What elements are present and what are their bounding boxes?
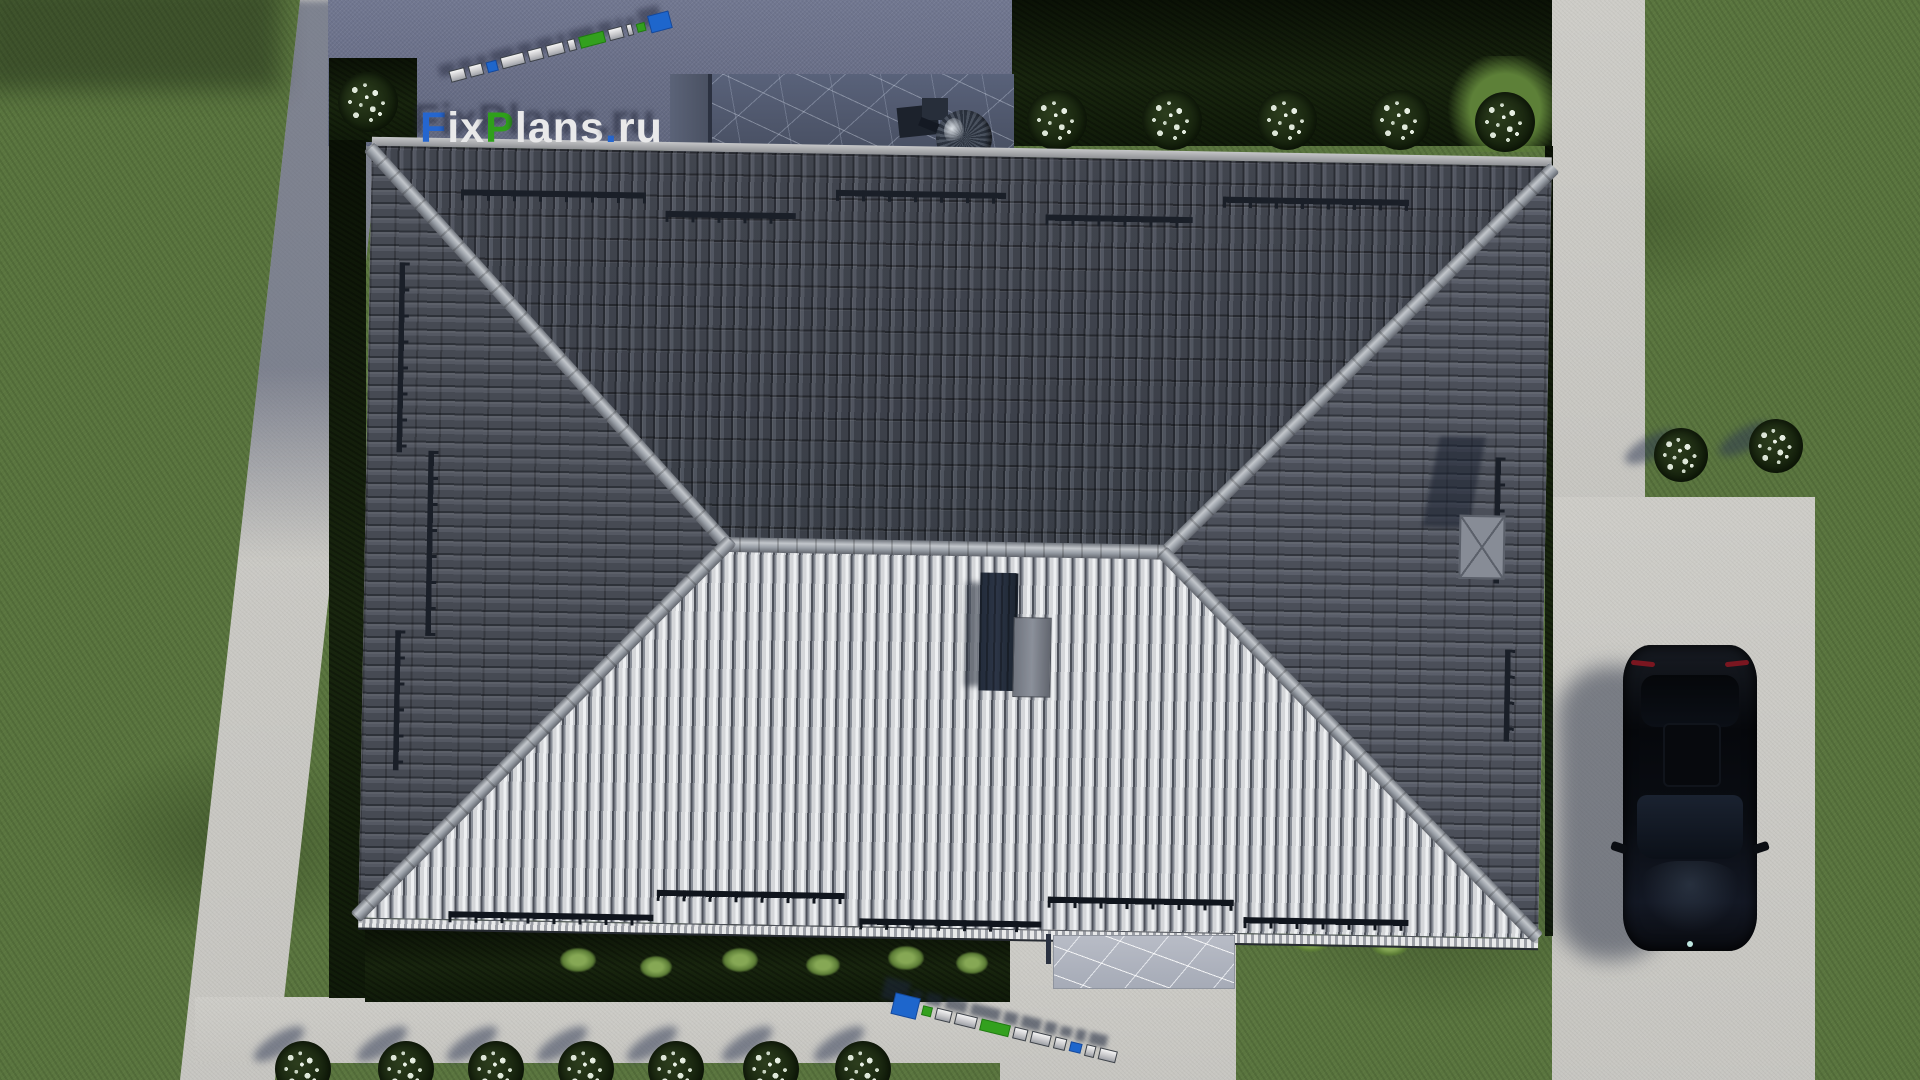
top-left-corner-shade [0, 0, 280, 90]
plant-tuft [722, 948, 758, 972]
snow-guard-rail [666, 211, 796, 224]
car-front-emblem [1687, 941, 1693, 947]
plant-tuft [956, 952, 988, 974]
plant-tuft [888, 946, 924, 970]
logo-3d-segment [1030, 1031, 1052, 1047]
watermark-text: FixPlans.ru [420, 104, 663, 153]
car-hood-reflection [1635, 861, 1745, 939]
car-taillight [1725, 660, 1749, 667]
logo-3d-segment [1012, 1027, 1028, 1042]
logo-3d-segment [545, 41, 565, 57]
logo-3d-segment [636, 21, 647, 32]
logo-3d-segment [448, 67, 467, 83]
render-canvas: FixPlans.ru [0, 0, 1920, 1080]
logo-3d-segment [500, 52, 526, 70]
logo-3d-segment [1084, 1044, 1097, 1058]
house-roof [358, 137, 1552, 947]
flowering-bush [1654, 428, 1708, 482]
logo-3d-segment [468, 63, 485, 78]
roof-hatch [1458, 515, 1505, 580]
snow-guard-rail [1504, 650, 1516, 742]
flowering-bush [1257, 90, 1317, 150]
flowering-bush [1142, 90, 1202, 150]
plant-tuft [806, 954, 840, 976]
watermark-dot: . [605, 104, 618, 152]
flowering-bush [1027, 90, 1087, 150]
watermark-letter-f: F [420, 104, 447, 152]
logo-3d-segment [979, 1018, 1011, 1037]
car [1623, 645, 1757, 951]
watermark-letters-ix: ix [447, 104, 485, 152]
plant-tuft [560, 948, 596, 972]
logo-3d-segment [921, 1005, 933, 1017]
logo-3d-segment [934, 1008, 952, 1023]
logo-3d-segment [1069, 1041, 1083, 1054]
chimney-flashing [1012, 617, 1051, 698]
right-walkway [1552, 0, 1645, 502]
logo-3d-segment [607, 26, 625, 41]
dish-highlight [944, 118, 964, 144]
watermark-letters-lans: lans [515, 104, 605, 152]
logo-3d-segment [1098, 1047, 1118, 1063]
flowering-bush [1370, 90, 1430, 150]
logo-3d-segment [625, 23, 634, 36]
front-stone-patio [1053, 935, 1235, 989]
watermark-letters-ru: ru [618, 104, 663, 152]
car-sunroof [1663, 723, 1721, 787]
plant-tuft [640, 956, 672, 978]
logo-3d-segment [485, 59, 498, 72]
flowering-bush [1475, 92, 1535, 152]
logo-3d-segment [527, 47, 545, 62]
logo-3d-segment [566, 38, 577, 52]
logo-3d-segment [578, 31, 606, 49]
watermark-letter-p: P [485, 104, 515, 152]
flowering-bush [338, 72, 398, 132]
car-taillight [1631, 660, 1655, 667]
patio-post [1046, 934, 1051, 964]
flowering-bush [1749, 419, 1803, 473]
car-rear-window [1641, 675, 1739, 727]
logo-3d-segment [954, 1012, 978, 1029]
logo-3d-segment [1053, 1036, 1068, 1051]
car-windshield [1637, 795, 1743, 859]
